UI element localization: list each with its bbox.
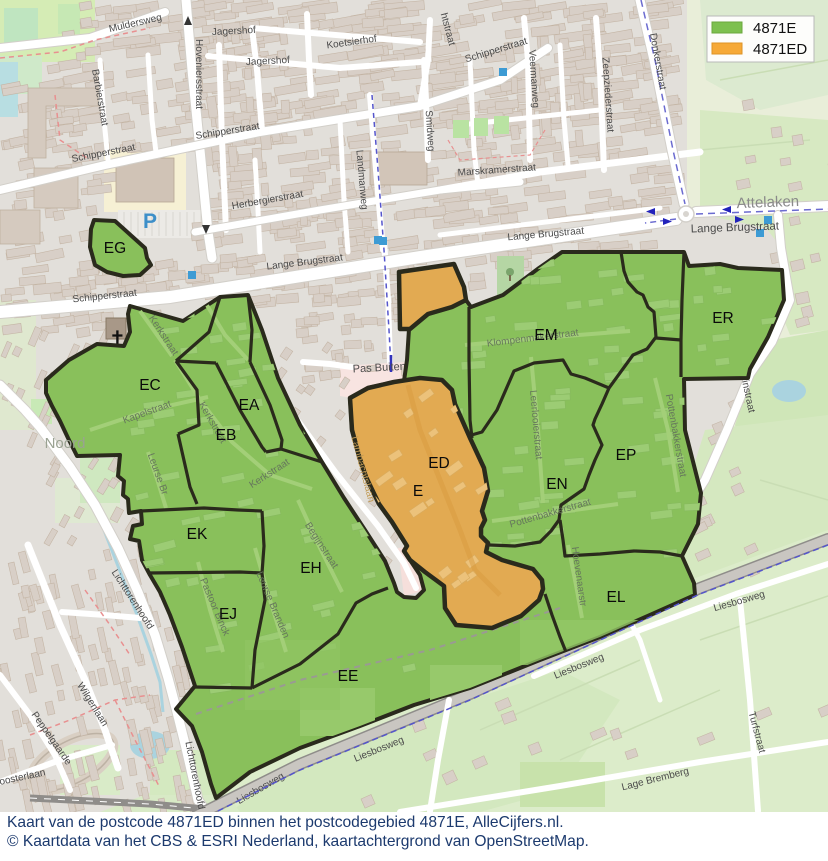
- svg-text:EG: EG: [104, 240, 126, 257]
- svg-text:EM: EM: [534, 327, 557, 344]
- svg-text:EA: EA: [239, 397, 260, 414]
- svg-text:EE: EE: [338, 668, 359, 685]
- svg-text:EK: EK: [187, 526, 208, 543]
- svg-text:EB: EB: [216, 427, 237, 444]
- svg-text:Jagershof: Jagershof: [212, 25, 257, 38]
- svg-text:P: P: [143, 210, 157, 233]
- svg-text:Noord: Noord: [45, 435, 86, 452]
- svg-text:4871E: 4871E: [753, 20, 796, 37]
- svg-text:4871ED: 4871ED: [753, 41, 807, 58]
- svg-text:ED: ED: [428, 455, 450, 472]
- svg-text:EN: EN: [546, 476, 568, 493]
- svg-text:Hoveniersstraat: Hoveniersstraat: [193, 39, 204, 109]
- svg-text:ER: ER: [712, 310, 734, 327]
- svg-text:Jagershof: Jagershof: [246, 55, 291, 68]
- svg-text:EJ: EJ: [219, 606, 237, 623]
- svg-text:EH: EH: [300, 560, 322, 577]
- svg-text:EC: EC: [139, 377, 161, 394]
- svg-text:Attelaken: Attelaken: [736, 193, 799, 212]
- svg-text:EL: EL: [607, 589, 626, 606]
- svg-text:EP: EP: [616, 447, 637, 464]
- svg-text:E: E: [413, 483, 423, 500]
